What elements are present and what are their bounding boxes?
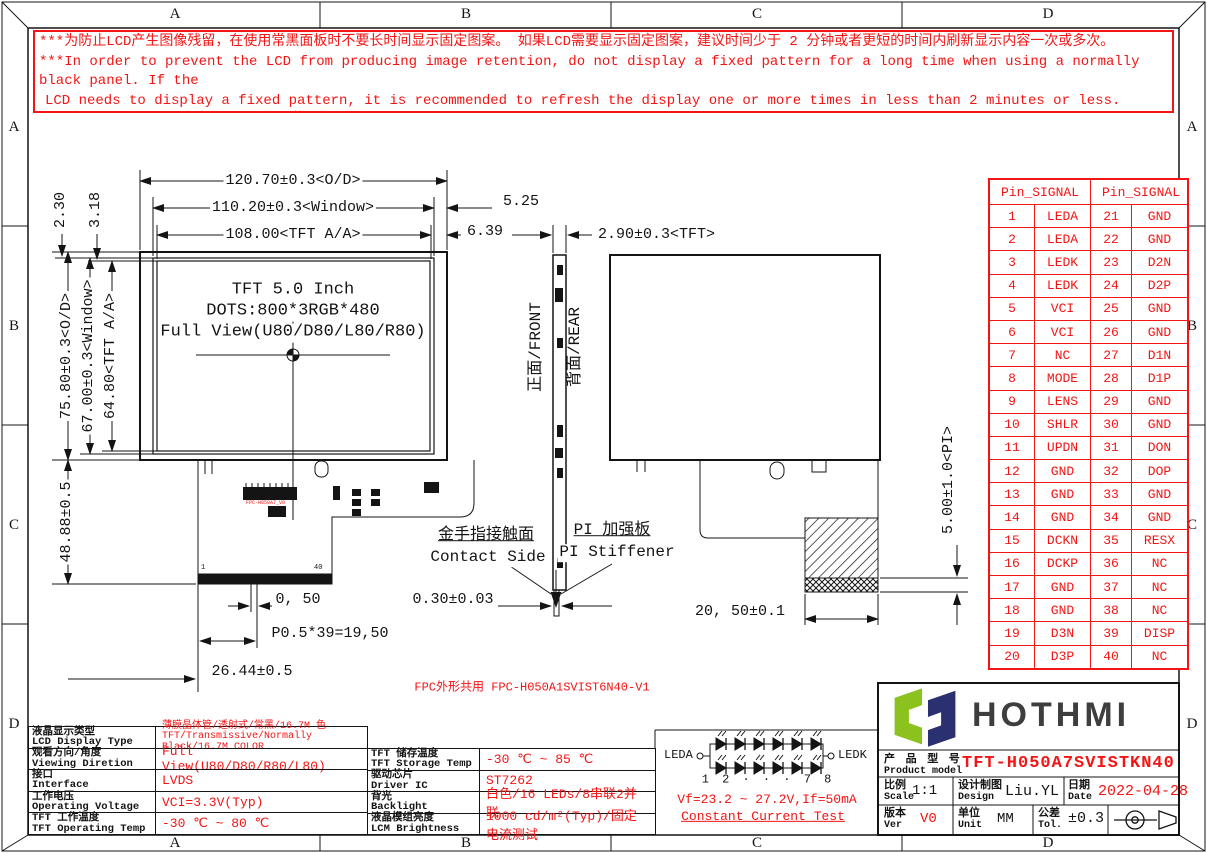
pin-signal: GND	[1035, 599, 1091, 621]
dim-gap-639: 6.39	[465, 224, 505, 241]
spec-label-en: Viewing Diretion	[32, 759, 152, 770]
pin-number: 26	[1091, 321, 1132, 343]
dim-pin-pitch: P0.5*39=19,50	[269, 626, 390, 643]
dim-gap-318: 3.18	[88, 190, 105, 230]
pin-table-rows: 1LEDA21GND2LEDA22GND3LEDK23D2N4LEDK24D2P…	[990, 204, 1187, 668]
retention-warning-box: ***为防止LCD产生图像残留，在使用常黑面板时不要长时间显示固定图案。 如果L…	[33, 30, 1174, 113]
stiffener-label-cn: PI 加强板	[572, 522, 653, 540]
pin-row: 8MODE28D1P	[990, 366, 1187, 389]
pin-signal: GND	[1132, 414, 1187, 436]
dim-pi-height: 5.00±1.0<PI>	[941, 424, 958, 536]
pin-number: 18	[990, 599, 1035, 621]
led-test-note: Constant Current Test	[681, 810, 845, 824]
pin-signal: GND	[1132, 228, 1187, 250]
dim-fpc-left: 26.44±0.5	[209, 664, 294, 681]
model-label-cn: 产 品 型 号	[884, 754, 962, 766]
pin-number: 22	[1091, 228, 1132, 250]
pin-number: 40	[1091, 646, 1132, 668]
pin-number: 1	[990, 205, 1035, 227]
frame-zone-right-d: D	[1187, 716, 1198, 733]
spec-row: TFT 工作温度TFT Operating Temp-30 ℃ ~ 80 ℃	[29, 812, 367, 834]
pin-number: 4	[990, 275, 1035, 297]
scale-label-cn: 比例	[884, 780, 906, 792]
panel-size-label: TFT 5.0 Inch	[232, 282, 354, 301]
pin-signal: DON	[1132, 437, 1187, 459]
contact-side-label-cn: 金手指接触面	[436, 527, 536, 545]
pin-signal: LENS	[1035, 391, 1091, 413]
pin-row: 5VCI25GND	[990, 297, 1187, 320]
pin-number: 10	[990, 414, 1035, 436]
led-index-row: 1 2 · · · 7 8	[702, 773, 835, 786]
spec-label: 液晶显示类型LCD Display Type	[29, 727, 156, 748]
pin-row: 10SHLR30GND	[990, 413, 1187, 436]
pin-number: 30	[1091, 414, 1132, 436]
pin-number: 28	[1091, 367, 1132, 389]
designer-value: Liu.YL	[1005, 784, 1059, 801]
pin-signal: NC	[1035, 344, 1091, 366]
pin-number: 2	[990, 228, 1035, 250]
pin-number: 38	[1091, 599, 1132, 621]
spec-label: TFT 储存温度TFT Storage Temp	[368, 749, 480, 770]
spec-label: 背光Backlight	[368, 792, 480, 813]
spec-table-left: 液晶显示类型LCD Display Type薄膜晶体管/透射式/常黑/16.7M…	[28, 726, 368, 835]
pin-number: 9	[990, 391, 1035, 413]
pin-row: 19D3N39DISP	[990, 621, 1187, 644]
pin-number: 3	[990, 251, 1035, 273]
pin-signal: LEDK	[1035, 275, 1091, 297]
pin-signal: GND	[1132, 298, 1187, 320]
pin-signal: D2P	[1132, 275, 1187, 297]
pin-signal: DISP	[1132, 622, 1187, 644]
contact-side-label-en: Contact Side	[428, 549, 547, 567]
pin-number: 7	[990, 344, 1035, 366]
pin-row: 1LEDA21GND	[990, 204, 1187, 227]
spec-value: 1000 cd/m²(Typ)/固定电流测试	[480, 814, 655, 835]
dim-stiffener-width: 20, 50±0.1	[693, 604, 787, 621]
version-label-en: Ver	[884, 820, 902, 831]
spec-label-en: Operating Voltage	[32, 802, 152, 813]
panel-view-label: Full View(U80/D80/L80/R80)	[160, 324, 425, 343]
pin-1-label: 1	[201, 565, 205, 573]
pin-number: 17	[990, 576, 1035, 598]
dim-od-height: 75.80±0.3<O/D>	[59, 291, 76, 421]
pin-signal: GND	[1035, 576, 1091, 598]
pin-signal: D3P	[1035, 646, 1091, 668]
pin-number: 13	[990, 483, 1035, 505]
led-vf-spec: Vf=23.2 ~ 27.2V,If=50mA	[677, 793, 856, 807]
pin-row: 12GND32DOP	[990, 459, 1187, 482]
pin-row: 17GND37NC	[990, 575, 1187, 598]
pin-signal: LEDA	[1035, 205, 1091, 227]
stiffener-label-en: PI Stiffener	[557, 544, 676, 562]
spec-row: 工作电压Operating VoltageVCI=3.3V(Typ)	[29, 791, 367, 813]
pin-number: 32	[1091, 460, 1132, 482]
unit-label-cn: 单位	[958, 808, 980, 820]
pin-number: 34	[1091, 506, 1132, 528]
unit-value: MM	[997, 812, 1014, 827]
pin-signal: VCI	[1035, 298, 1091, 320]
pin-signal: GND	[1132, 391, 1187, 413]
pin-row: 7NC27D1N	[990, 343, 1187, 366]
frame-zone-top-b: B	[461, 6, 471, 23]
frame-zone-left-c: C	[9, 517, 19, 534]
pin-signal: MODE	[1035, 367, 1091, 389]
fpc-part-label: FPC-H050A7_V0	[246, 501, 285, 507]
dim-aa-width: 108.00<TFT A/A>	[223, 227, 362, 244]
dim-od-width: 120.70±0.3<O/D>	[223, 173, 362, 190]
pin-signal: NC	[1132, 599, 1187, 621]
pin-signal: DCKP	[1035, 553, 1091, 575]
spec-label-en: Driver IC	[371, 781, 476, 792]
pin-number: 35	[1091, 530, 1132, 552]
frame-zone-right-a: A	[1187, 119, 1198, 136]
spec-label: 工作电压Operating Voltage	[29, 792, 156, 813]
dim-aa-height: 64.80<TFT A/A>	[103, 291, 120, 421]
pin-row: 14GND34GND	[990, 505, 1187, 528]
pin-signal: GND	[1035, 506, 1091, 528]
pin-number: 5	[990, 298, 1035, 320]
pin-row: 9LENS29GND	[990, 390, 1187, 413]
spec-label-en: LCM Brightness	[371, 824, 476, 835]
pin-number: 37	[1091, 576, 1132, 598]
led-cathode-label: LEDK	[838, 749, 867, 762]
pin-row: 13GND33GND	[990, 482, 1187, 505]
scale-label-en: Scale	[884, 792, 914, 803]
spec-value: LVDS	[156, 770, 367, 791]
led-anode-label: LEDA	[664, 749, 693, 762]
pin-signal: D2N	[1132, 251, 1187, 273]
dim-gap-525: 5.25	[501, 194, 541, 211]
frame-zone-top-c: C	[752, 6, 762, 23]
pin-row: 4LEDK24D2P	[990, 274, 1187, 297]
pin-number: 23	[1091, 251, 1132, 273]
date-label-cn: 日期	[1068, 780, 1090, 792]
pin-signal: LEDA	[1035, 228, 1091, 250]
pin-number: 12	[990, 460, 1035, 482]
pin-number: 20	[990, 646, 1035, 668]
frame-zone-left-d: D	[9, 716, 20, 733]
pin-row: 6VCI26GND	[990, 320, 1187, 343]
frame-zone-left-b: B	[9, 318, 19, 335]
pin-row: 11UPDN31DON	[990, 436, 1187, 459]
tolerance-label-cn: 公差	[1038, 808, 1060, 820]
frame-zone-top-d: D	[1043, 6, 1054, 23]
spec-row: TFT 储存温度TFT Storage Temp-30 ℃ ~ 85 ℃	[368, 749, 655, 770]
version-label-cn: 版本	[884, 808, 906, 820]
pin-number: 36	[1091, 553, 1132, 575]
pin-row: 18GND38NC	[990, 598, 1187, 621]
pin-signal: SHLR	[1035, 414, 1091, 436]
pin-row: 2LEDA22GND	[990, 227, 1187, 250]
pin-signal: DOP	[1132, 460, 1187, 482]
spec-row: 液晶模组亮度LCM Brightness1000 cd/m²(Typ)/固定电流…	[368, 813, 655, 835]
warning-line-3: LCD needs to display a fixed pattern, it…	[39, 92, 1168, 112]
pin-signal-table: Pin_SIGNAL Pin_SIGNAL 1LEDA21GND2LEDA22G…	[988, 178, 1189, 670]
tolerance-label-en: Tol.	[1038, 820, 1062, 831]
pin-row: 16DCKP36NC	[990, 552, 1187, 575]
pin-signal: UPDN	[1035, 437, 1091, 459]
pin-table-header-left: Pin_SIGNAL	[990, 180, 1091, 204]
pin-number: 16	[990, 553, 1035, 575]
spec-table-right: TFT 储存温度TFT Storage Temp-30 ℃ ~ 85 ℃驱动芯片…	[367, 748, 656, 835]
rear-face-label: 背面/REAR	[567, 305, 585, 389]
pin-number: 6	[990, 321, 1035, 343]
brand-wordmark: HOTHMI	[972, 697, 1130, 734]
pin-number: 29	[1091, 391, 1132, 413]
pin-number: 31	[1091, 437, 1132, 459]
pin-row: 15DCKN35RESX	[990, 529, 1187, 552]
spec-label-en: Interface	[32, 780, 152, 791]
spec-label: TFT 工作温度TFT Operating Temp	[29, 813, 156, 834]
projection-angle-icon	[1113, 809, 1177, 831]
frame-zone-bottom-a: A	[170, 835, 181, 852]
pin-signal: GND	[1132, 321, 1187, 343]
pin-signal: NC	[1132, 553, 1187, 575]
unit-label-en: Unit	[958, 820, 982, 831]
pin-row: 20D3P40NC	[990, 645, 1187, 668]
dim-window-height: 67.00±0.3<Window>	[81, 277, 98, 434]
pin-signal: D1P	[1132, 367, 1187, 389]
spec-label: 驱动芯片Driver IC	[368, 771, 480, 792]
pin-40-label: 40	[314, 565, 322, 573]
design-label-en: Design	[958, 792, 994, 803]
dim-gap-230: 2.30	[53, 190, 70, 230]
pin-number: 24	[1091, 275, 1132, 297]
date-label-en: Date	[1068, 792, 1092, 803]
pin-number: 11	[990, 437, 1035, 459]
spec-value: -30 ℃ ~ 85 ℃	[480, 749, 655, 770]
pin-signal: D3N	[1035, 622, 1091, 644]
pin-signal: GND	[1035, 460, 1091, 482]
tolerance-value: ±0.3	[1068, 811, 1104, 828]
pin-signal: D1N	[1132, 344, 1187, 366]
warning-line-1: ***为防止LCD产生图像残留，在使用常黑面板时不要长时间显示固定图案。 如果L…	[39, 33, 1168, 53]
panel-resolution-label: DOTS:800*3RGB*480	[206, 303, 379, 322]
pin-number: 21	[1091, 205, 1132, 227]
front-face-label: 正面/FRONT	[528, 300, 546, 394]
pin-signal: GND	[1035, 483, 1091, 505]
model-label-en: Product model	[884, 766, 962, 777]
frame-zone-bottom-b: B	[461, 835, 471, 852]
pin-signal: GND	[1132, 483, 1187, 505]
pin-signal: NC	[1132, 576, 1187, 598]
warning-line-2: ***In order to prevent the LCD from prod…	[39, 53, 1168, 92]
date-value: 2022-04-28	[1098, 784, 1188, 801]
version-value: V0	[920, 812, 937, 827]
spec-value: VCI=3.3V(Typ)	[156, 792, 367, 813]
pin-row: 3LEDK23D2N	[990, 250, 1187, 273]
product-model-value: TFT-H050A7SVISTKN40	[962, 755, 1175, 774]
pin-number: 33	[1091, 483, 1132, 505]
spec-label: 接口Interface	[29, 770, 156, 791]
pin-signal: RESX	[1132, 530, 1187, 552]
spec-row: 接口InterfaceLVDS	[29, 769, 367, 791]
pin-number: 25	[1091, 298, 1132, 320]
dim-window-width: 110.20±0.3<Window>	[210, 200, 376, 217]
pin-signal: GND	[1132, 205, 1187, 227]
pin-signal: DCKN	[1035, 530, 1091, 552]
design-label-cn: 设计制图	[958, 780, 1002, 792]
dim-pin-width: 0, 50	[273, 592, 322, 609]
pin-number: 15	[990, 530, 1035, 552]
frame-zone-bottom-c: C	[752, 835, 762, 852]
pin-signal: LEDK	[1035, 251, 1091, 273]
dim-tft-thickness: 2.90±0.3<TFT>	[596, 227, 717, 244]
pin-signal: VCI	[1035, 321, 1091, 343]
spec-label: 观看方向/角度Viewing Diretion	[29, 749, 156, 770]
spec-label-en: TFT Operating Temp	[32, 824, 152, 835]
dim-fpc-thickness: 0.30±0.03	[410, 592, 495, 609]
hothmi-logo-icon	[890, 686, 960, 748]
spec-value: -30 ℃ ~ 80 ℃	[156, 813, 367, 834]
pin-signal: GND	[1132, 506, 1187, 528]
frame-zone-left-a: A	[9, 119, 20, 136]
dim-fpc-height: 48.88±0.5	[59, 479, 76, 564]
frame-zone-top-a: A	[170, 6, 181, 23]
pin-number: 39	[1091, 622, 1132, 644]
spec-row: 观看方向/角度Viewing DiretionFull View(U80/D80…	[29, 748, 367, 770]
pin-number: 19	[990, 622, 1035, 644]
spec-value: Full View(U80/D80/R80/L80)	[156, 749, 367, 770]
pin-number: 8	[990, 367, 1035, 389]
spec-label: 液晶模组亮度LCM Brightness	[368, 814, 480, 835]
datasheet-drawing-sheet: A B C D A B C D A B C D A B C D ***为防止LC…	[0, 0, 1207, 853]
pin-table-header-right: Pin_SIGNAL	[1091, 180, 1191, 204]
scale-value: 1:1	[912, 784, 937, 799]
pin-table-header: Pin_SIGNAL Pin_SIGNAL	[990, 180, 1187, 204]
pin-signal: NC	[1132, 646, 1187, 668]
pin-number: 14	[990, 506, 1035, 528]
warning-line-4: 强烈建议使用黑色图像或移动图像作为屏幕保护程序。It is strongly r…	[39, 111, 1168, 113]
frame-zone-bottom-d: D	[1043, 835, 1054, 852]
fpc-shared-note: FPC外形共用 FPC-H050A1SVIST6N40-V1	[414, 681, 649, 694]
pin-number: 27	[1091, 344, 1132, 366]
